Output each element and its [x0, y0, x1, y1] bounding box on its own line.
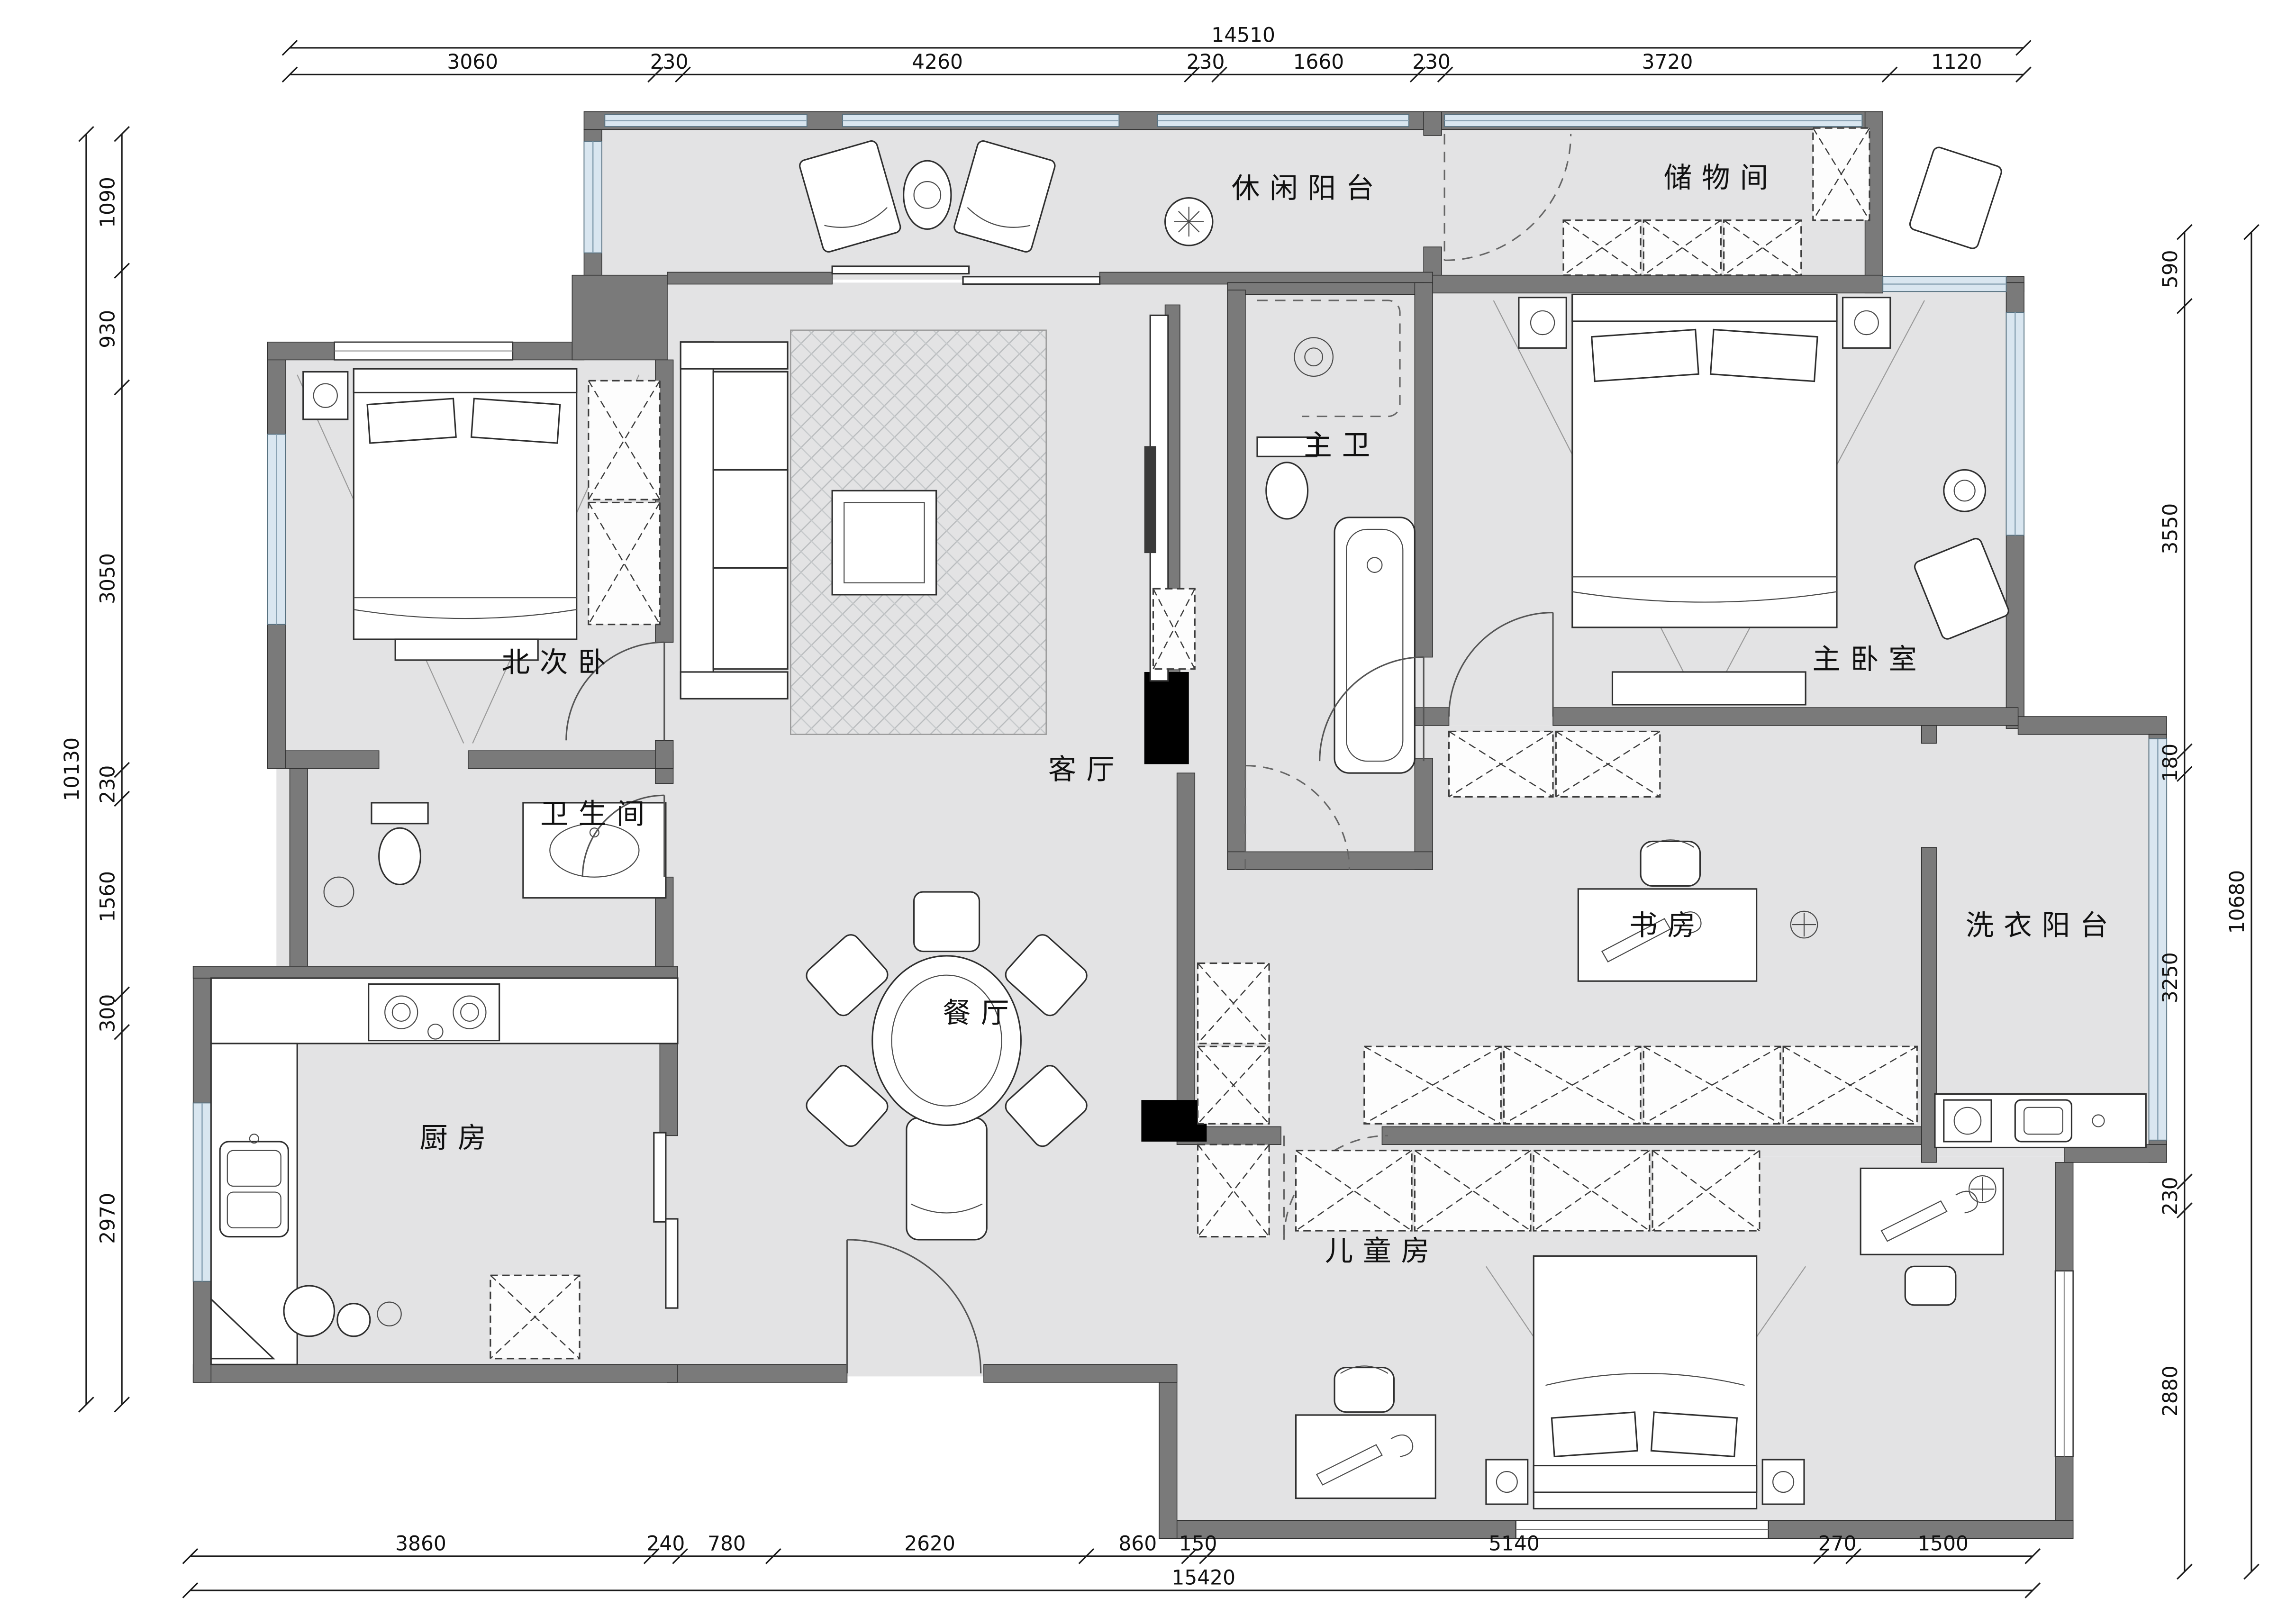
wall: [1227, 852, 1433, 870]
room-label-kitchen: 厨房: [419, 1122, 496, 1154]
vanity-table: [1860, 1168, 2003, 1254]
room-label-laundry-balcony: 洗衣阳台: [1966, 909, 2118, 942]
wardrobe-xbox: [1364, 1046, 1501, 1124]
washing-machine: [1944, 1100, 1991, 1142]
wardrobe-xbox: [1449, 731, 1553, 797]
wardrobe-xbox: [1813, 128, 1869, 220]
room-label-children-room: 儿童房: [1325, 1235, 1439, 1268]
toilet-icon: [1266, 463, 1308, 519]
wardrobe-xbox: [1643, 1046, 1780, 1124]
dim-label: 230: [2159, 1177, 2182, 1215]
desk-chair: [1641, 841, 1700, 886]
dim-label: 4260: [912, 50, 963, 73]
room-label-living-room: 客厅: [1048, 754, 1125, 786]
dim-label: 590: [2159, 250, 2182, 288]
kids-desk: [1296, 1415, 1436, 1498]
wall: [1922, 726, 1936, 744]
wall: [1553, 708, 2018, 726]
dim-label: 5140: [1488, 1532, 1540, 1555]
kitchen-sink: [220, 1142, 288, 1237]
dim-total: 10130: [60, 737, 83, 801]
dim-label: 230: [1187, 50, 1225, 73]
dim-label: 3060: [447, 50, 498, 73]
wardrobe-xbox: [1563, 220, 1641, 275]
tv-console: [1612, 672, 1806, 705]
room-label-leisure-balcony: 休闲阳台: [1232, 173, 1384, 205]
dim-label: 180: [2159, 744, 2182, 782]
wardrobe-xbox: [1153, 589, 1195, 669]
wardrobe-xbox: [1198, 1144, 1270, 1236]
dim-label: 230: [96, 765, 119, 804]
wall: [1177, 773, 1195, 1144]
wardrobe-xbox: [1504, 1046, 1641, 1124]
coffee-table: [832, 490, 936, 595]
wall: [1227, 282, 1424, 294]
kids-chair: [1334, 1368, 1394, 1412]
dim-label: 230: [650, 50, 689, 73]
dim-label: 1660: [1293, 50, 1344, 73]
wall: [572, 275, 667, 360]
room-label-north-bedroom: 北次卧: [501, 646, 616, 679]
dim-label: 3720: [1642, 50, 1693, 73]
wardrobe-xbox: [1556, 731, 1660, 797]
wardrobe-xbox: [589, 502, 660, 624]
dim-label: 2880: [2159, 1365, 2182, 1416]
dim-total: 15420: [1171, 1566, 1235, 1589]
laundry-set: [1935, 1094, 2146, 1148]
wall: [1424, 275, 1883, 293]
wall: [193, 966, 678, 978]
dim-label: 860: [1118, 1532, 1157, 1555]
dim-total: 14510: [1211, 23, 1275, 46]
wardrobe-xbox: [1296, 1151, 1412, 1231]
high-back-chair: [907, 1118, 987, 1240]
dim-label: 300: [96, 994, 119, 1033]
wall: [1415, 708, 1449, 726]
toilet-icon: [379, 828, 421, 884]
wardrobe-xbox: [490, 1275, 580, 1359]
dim-label: 3550: [2159, 503, 2182, 554]
wall: [1159, 1364, 1177, 1538]
shaft: [1141, 1100, 1207, 1142]
bay-lounge-chair: [1908, 146, 2003, 250]
floor-plan-drawing: 3060230426023016602303720112014510386024…: [0, 0, 2296, 1607]
dim-total: 10680: [2225, 870, 2249, 934]
wardrobe-xbox: [1652, 1151, 1760, 1231]
stove: [369, 984, 499, 1041]
wall: [1415, 282, 1433, 657]
stool: [1905, 1266, 1956, 1305]
room-label-storage-room: 储物间: [1664, 162, 1778, 195]
wardrobe-xbox: [1783, 1046, 1917, 1124]
wall: [193, 1364, 678, 1382]
wardrobe-xbox: [1198, 963, 1270, 1044]
dim-label: 1120: [1931, 50, 1982, 73]
tv-screen: [1144, 446, 1156, 553]
wall: [290, 769, 308, 966]
dim-label: 3250: [2159, 952, 2182, 1003]
wall: [667, 272, 832, 284]
wardrobe-xbox: [1724, 220, 1801, 275]
wardrobe-xbox: [1415, 1151, 1531, 1231]
room-label-master-bath: 主卫: [1304, 429, 1380, 462]
wall: [468, 751, 673, 769]
wardrobe-xbox: [1643, 220, 1721, 275]
dim-label: 2970: [96, 1193, 119, 1244]
wardrobe-xbox: [1534, 1151, 1650, 1231]
dim-label: 2620: [904, 1532, 955, 1555]
room-label-master-bedroom: 主卧室: [1812, 644, 1926, 676]
dim-label: 230: [1412, 50, 1451, 73]
dim-label: 780: [708, 1532, 746, 1555]
dining-table: [872, 956, 1021, 1125]
wall: [655, 740, 673, 769]
wall: [984, 1364, 1177, 1382]
wardrobe-xbox: [589, 381, 660, 499]
room-label-study: 书房: [1629, 909, 1706, 942]
wall: [2018, 717, 2167, 735]
dim-label: 3860: [395, 1532, 446, 1555]
dim-label: 240: [646, 1532, 685, 1555]
dim-label: 1560: [96, 871, 119, 922]
dim-label: 1090: [96, 177, 119, 228]
dim-label: 930: [96, 310, 119, 348]
wardrobe-xbox: [1198, 1046, 1270, 1124]
wall: [655, 769, 673, 783]
wall: [1227, 290, 1245, 870]
dim-label: 1500: [1917, 1532, 1969, 1555]
room-label-dining-room: 餐厅: [943, 997, 1019, 1030]
room-label-bathroom: 卫生间: [540, 798, 654, 831]
shaft: [1144, 672, 1189, 764]
wall: [667, 1364, 847, 1382]
dim-label: 3050: [96, 553, 119, 604]
wall: [1424, 112, 1442, 136]
dim-label: 270: [1818, 1532, 1857, 1555]
